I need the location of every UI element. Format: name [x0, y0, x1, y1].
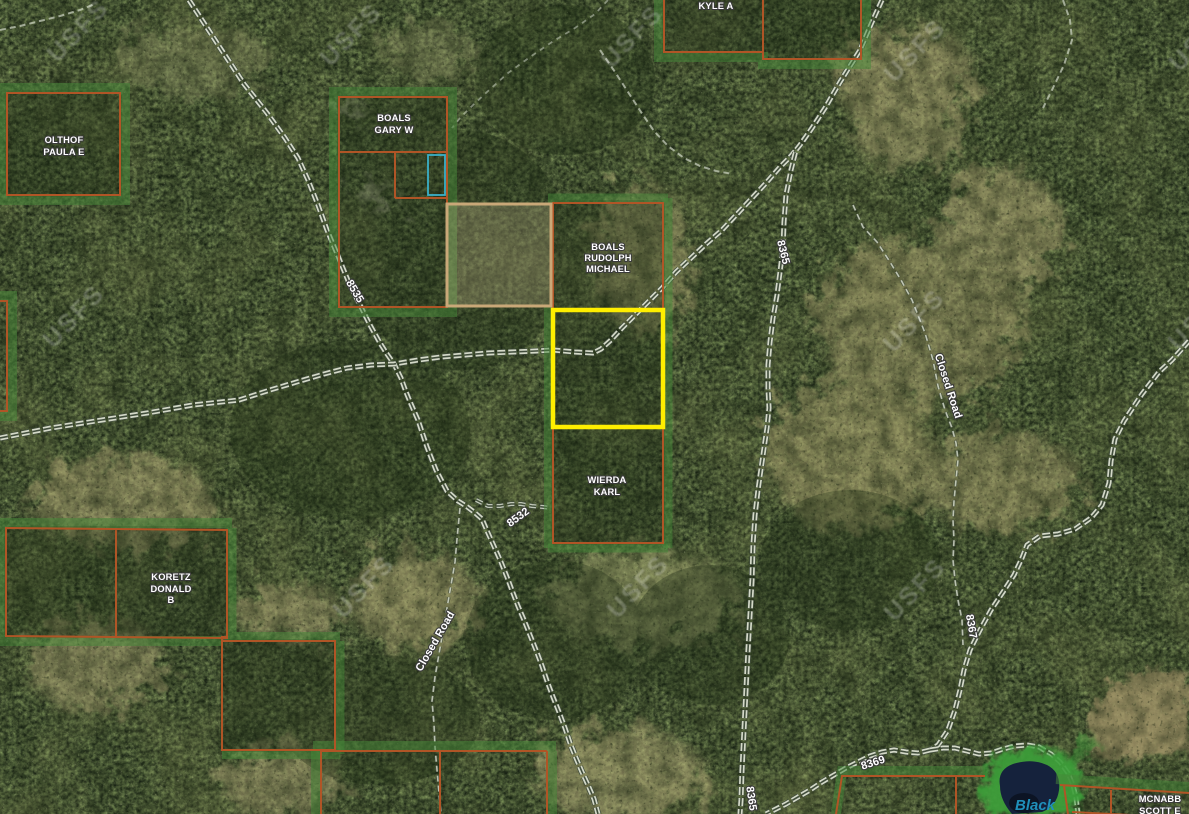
svg-text:BOALS: BOALS: [591, 242, 625, 252]
svg-text:GARY W: GARY W: [375, 125, 414, 135]
svg-text:MCNABB: MCNABB: [1139, 794, 1182, 804]
svg-text:Black: Black: [1015, 797, 1056, 814]
svg-text:WIERDA: WIERDA: [588, 475, 627, 485]
svg-text:OLTHOF: OLTHOF: [45, 135, 84, 145]
svg-text:BOALS: BOALS: [377, 113, 411, 123]
svg-text:PAULA E: PAULA E: [43, 147, 84, 157]
svg-text:DONALD: DONALD: [151, 584, 192, 594]
svg-text:RUDOLPH: RUDOLPH: [584, 253, 631, 263]
svg-text:B: B: [168, 595, 175, 605]
svg-text:MICHAEL: MICHAEL: [586, 264, 630, 274]
svg-text:KARL: KARL: [594, 487, 621, 497]
svg-text:KORETZ: KORETZ: [151, 572, 191, 582]
svg-text:KYLE A: KYLE A: [699, 1, 734, 11]
svg-text:SCOTT E: SCOTT E: [1139, 806, 1181, 814]
